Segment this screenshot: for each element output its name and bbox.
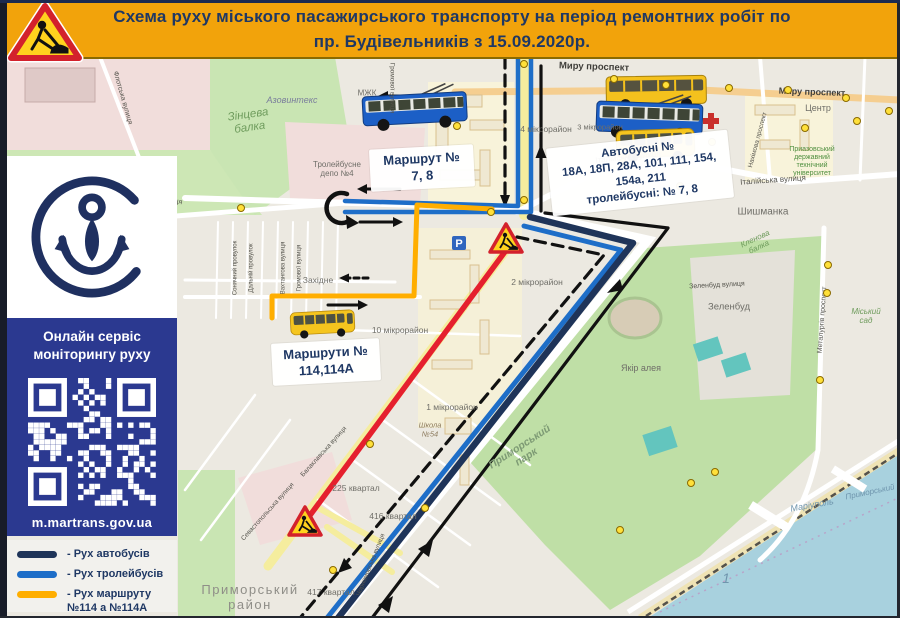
page-title: Схема руху міського пасажирського трансп… xyxy=(7,5,897,30)
anchor-logo-icon xyxy=(26,171,158,303)
legend-item-1: - Рух тролейбусів xyxy=(17,568,177,581)
legend-swatch xyxy=(17,591,57,598)
parking-icon: P xyxy=(452,236,466,250)
legend-item-2: - Рух маршруту №114 а №114А xyxy=(17,588,177,614)
page-title-line2: пр. Будівельників з 15.09.2020р. xyxy=(7,30,897,55)
frame-top xyxy=(0,0,900,3)
legend-swatch xyxy=(17,571,57,578)
legend-label: - Рух тролейбусів xyxy=(67,568,163,581)
legend-label: - Рух маршруту №114 а №114А xyxy=(67,588,151,614)
roadworks-warning-icon xyxy=(5,1,85,63)
svg-text:P: P xyxy=(455,238,462,250)
legend-item-0: - Рух автобусів xyxy=(17,548,177,561)
service-label: Онлайн сервіс моніторингу руху xyxy=(7,328,177,364)
callout-route-7-8: Маршрут № 7, 8 xyxy=(369,144,475,191)
qr-code xyxy=(28,378,156,506)
qr-url: m.martrans.gov.ua xyxy=(7,515,177,530)
legend: - Рух автобусів- Рух тролейбусів- Рух ма… xyxy=(7,540,177,612)
martrans-logo-panel xyxy=(7,156,177,318)
frame-left xyxy=(0,0,7,618)
legend-swatch xyxy=(17,551,57,558)
online-service-box: Онлайн сервіс моніторингу руху m.martran… xyxy=(7,318,177,536)
callout-route-114: Маршрути № 114,114А xyxy=(271,338,381,385)
legend-label: - Рух автобусів xyxy=(67,548,150,561)
header-banner: Схема руху міського пасажирського трансп… xyxy=(7,3,897,59)
transport-scheme-poster: { "header": { "title_line1": "Схема руху… xyxy=(0,0,900,618)
